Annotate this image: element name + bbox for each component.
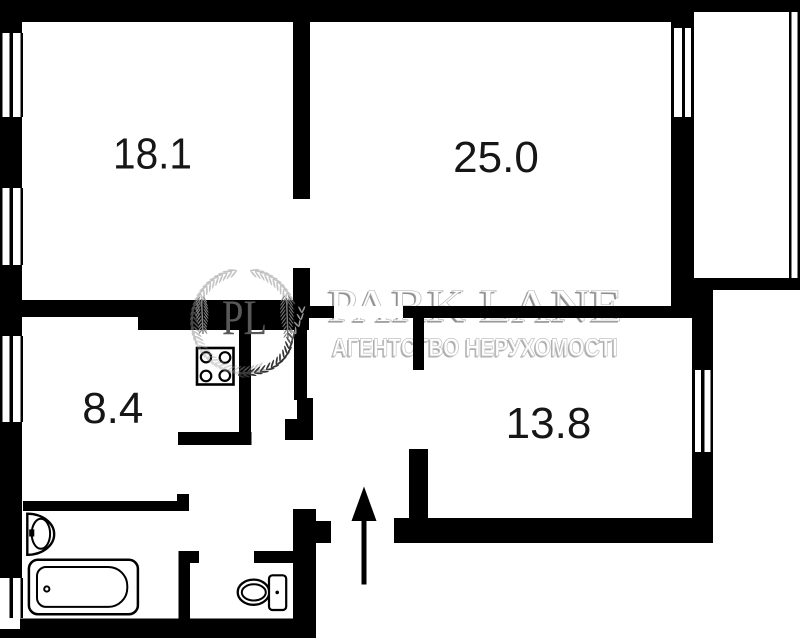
svg-text:18.1: 18.1	[113, 129, 192, 178]
svg-text:АГЕНТСТВО НЕРУХОМОСТІ: АГЕНТСТВО НЕРУХОМОСТІ	[332, 334, 618, 362]
svg-text:PL: PL	[222, 289, 267, 345]
svg-text:8.4: 8.4	[82, 384, 143, 433]
svg-text:25.0: 25.0	[453, 133, 539, 182]
svg-text:13.8: 13.8	[506, 399, 592, 448]
